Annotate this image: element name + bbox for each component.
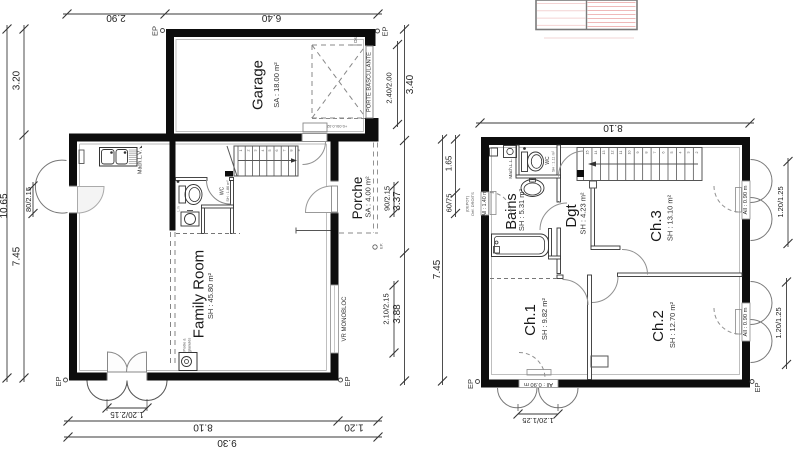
- svg-text:Ch.1: Ch.1: [522, 304, 539, 336]
- svg-text:+0.00/-0.02: +0.00/-0.02: [326, 124, 347, 129]
- svg-text:15: 15: [585, 151, 589, 155]
- svg-text:SH : 1.11 m²: SH : 1.11 m²: [552, 150, 556, 172]
- svg-text:SH : 4.23 m²: SH : 4.23 m²: [579, 192, 588, 235]
- svg-text:Ds: Ds: [353, 37, 358, 43]
- svg-text:1.20/1.25: 1.20/1.25: [774, 307, 783, 338]
- svg-text:EP: EP: [54, 376, 63, 386]
- svg-text:4: 4: [678, 152, 682, 154]
- svg-text:Garage: Garage: [250, 60, 267, 110]
- svg-text:1.20/1.25: 1.20/1.25: [522, 416, 553, 425]
- svg-text:WC: WC: [220, 186, 226, 195]
- svg-text:1.65: 1.65: [445, 155, 454, 171]
- svg-text:9: 9: [297, 150, 301, 152]
- svg-text:EP.: EP.: [379, 243, 384, 249]
- svg-text:VR MONOBLOC: VR MONOBLOC: [342, 296, 348, 342]
- svg-text:7.45: 7.45: [12, 246, 23, 266]
- svg-text:EP: EP: [753, 382, 762, 392]
- svg-text:EP: EP: [466, 379, 475, 389]
- svg-text:7: 7: [653, 152, 657, 154]
- svg-text:All : 0.90 m: All : 0.90 m: [743, 185, 749, 214]
- svg-text:Mach.L.V.: Mach.L.V.: [138, 149, 144, 174]
- svg-text:8.10: 8.10: [603, 122, 623, 133]
- svg-text:6.40: 6.40: [261, 12, 281, 23]
- svg-text:3.20: 3.20: [12, 70, 23, 90]
- svg-text:3: 3: [254, 150, 258, 152]
- svg-text:4: 4: [261, 150, 265, 152]
- svg-text:All : 0.90 m: All : 0.90 m: [524, 381, 553, 387]
- svg-text:80/2.15: 80/2.15: [24, 187, 33, 212]
- svg-text:7.45: 7.45: [432, 259, 443, 279]
- svg-text:14: 14: [594, 151, 598, 155]
- svg-text:3.88: 3.88: [392, 304, 403, 324]
- svg-text:2: 2: [695, 152, 699, 154]
- svg-text:Ch.2: Ch.2: [650, 310, 667, 342]
- svg-text:EP: EP: [151, 26, 160, 36]
- svg-text:8: 8: [290, 150, 294, 152]
- svg-text:13: 13: [602, 151, 606, 155]
- svg-text:SH : 12.70 m²: SH : 12.70 m²: [668, 301, 677, 348]
- svg-text:10.65: 10.65: [0, 193, 10, 218]
- svg-text:EP: EP: [343, 376, 352, 386]
- svg-text:8: 8: [644, 152, 648, 154]
- svg-text:Poêle à: Poêle à: [183, 338, 187, 352]
- svg-text:(DEPOT): (DEPOT): [465, 195, 470, 212]
- svg-text:1.20/1.25: 1.20/1.25: [776, 186, 785, 217]
- svg-text:3: 3: [687, 152, 691, 154]
- svg-text:L.m: L.m: [177, 206, 181, 212]
- svg-text:Ch.3: Ch.3: [648, 210, 665, 242]
- svg-text:1.20/2.15: 1.20/2.15: [110, 410, 144, 419]
- svg-text:granulés: granulés: [188, 338, 192, 353]
- svg-text:6: 6: [661, 152, 665, 154]
- svg-text:EP: EP: [381, 26, 390, 36]
- svg-text:12: 12: [611, 151, 615, 155]
- svg-text:SH : 1.86 m²: SH : 1.86 m²: [226, 180, 230, 202]
- svg-text:90/2.15: 90/2.15: [383, 186, 392, 211]
- svg-text:SH : 13.10 m²: SH : 13.10 m²: [666, 194, 675, 241]
- svg-text:Dgt: Dgt: [563, 203, 580, 227]
- svg-text:11: 11: [619, 151, 623, 155]
- svg-text:SA : 18.00 m²: SA : 18.00 m²: [272, 62, 281, 108]
- svg-text:WC: WC: [545, 156, 551, 165]
- svg-text:8.10: 8.10: [193, 422, 213, 433]
- svg-text:2.90: 2.90: [106, 12, 126, 23]
- svg-text:10: 10: [628, 151, 632, 155]
- svg-text:Déf. DROITS: Déf. DROITS: [470, 192, 475, 216]
- svg-text:1: 1: [239, 150, 243, 152]
- svg-text:3.40: 3.40: [405, 74, 416, 94]
- svg-text:All : 1.40 m: All : 1.40 m: [482, 191, 488, 217]
- svg-text:9: 9: [636, 152, 640, 154]
- svg-text:6: 6: [275, 150, 279, 152]
- svg-text:SA : 4.00 m²: SA : 4.00 m²: [364, 176, 373, 218]
- svg-text:3.37: 3.37: [392, 191, 403, 211]
- svg-text:SH : 5.31 m²: SH : 5.31 m²: [517, 188, 526, 231]
- svg-text:SH : 45.80 m²: SH : 45.80 m²: [206, 272, 215, 319]
- svg-text:9.30: 9.30: [217, 437, 237, 448]
- svg-text:Mach.L.L.: Mach.L.L.: [508, 158, 513, 178]
- svg-text:2.10/2.15: 2.10/2.15: [382, 293, 391, 324]
- svg-text:PORTE BASCULANTE: PORTE BASCULANTE: [367, 52, 373, 112]
- svg-text:Family Room: Family Room: [191, 250, 208, 338]
- svg-text:1.20: 1.20: [344, 422, 364, 433]
- svg-text:7: 7: [282, 150, 286, 152]
- svg-text:All : 0.90 m: All : 0.90 m: [743, 307, 749, 336]
- svg-text:60/75: 60/75: [445, 194, 454, 213]
- svg-text:5: 5: [670, 152, 674, 154]
- svg-text:2: 2: [246, 150, 250, 152]
- svg-text:5: 5: [268, 150, 272, 152]
- svg-text:SH : 9.82 m²: SH : 9.82 m²: [540, 297, 549, 340]
- svg-text:2.40/2.00: 2.40/2.00: [385, 72, 394, 103]
